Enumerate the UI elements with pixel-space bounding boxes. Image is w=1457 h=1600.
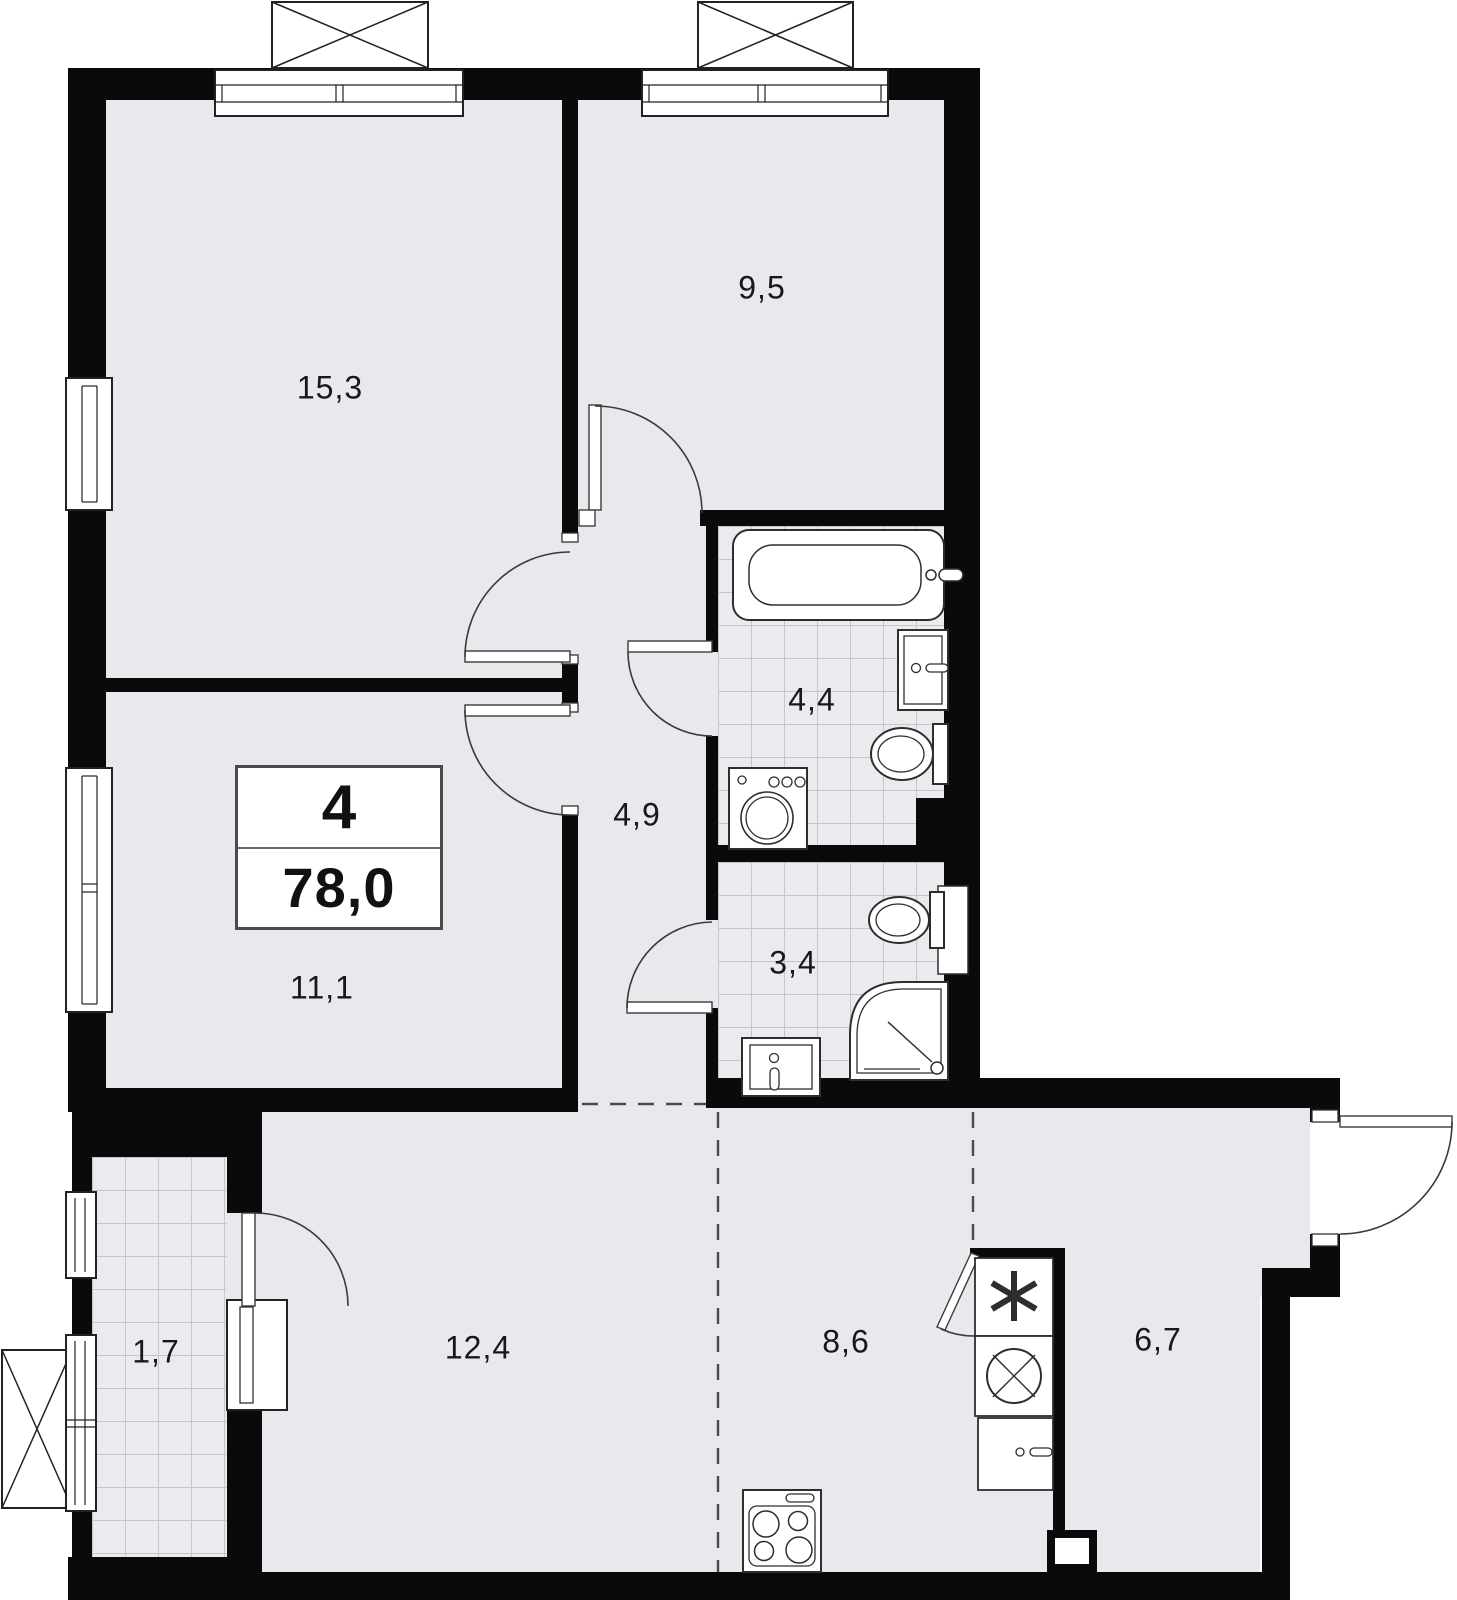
floor-plan: 15,3 9,5 4,4 4,9 3,4 11,1 1,7 12,4 8,6 6… xyxy=(0,0,1457,1600)
room-area-label-hallway: 4,9 xyxy=(613,797,660,834)
apartment-info-box: 4 78,0 xyxy=(235,765,443,930)
toilet-bathroom xyxy=(871,724,948,784)
rooms-count: 4 xyxy=(238,768,440,849)
door-balcony xyxy=(242,1213,348,1306)
room-area-label-shower-room: 3,4 xyxy=(769,945,816,982)
window-balcony-room xyxy=(227,1300,287,1410)
room-area-label-kitchen: 8,6 xyxy=(822,1324,869,1361)
jamb xyxy=(562,533,578,542)
door-living-room xyxy=(465,552,570,662)
stove xyxy=(743,1490,821,1572)
total-area: 78,0 xyxy=(238,849,440,928)
toilet-shower-room xyxy=(869,886,968,974)
window-living-top xyxy=(215,70,463,116)
jamb xyxy=(579,510,595,526)
kitchen-cabinet xyxy=(978,1418,1053,1490)
entrance-opening xyxy=(1310,1110,1340,1246)
door-shower-room xyxy=(627,922,712,1013)
shower-cabin xyxy=(850,982,948,1080)
room-area-label-dining: 6,7 xyxy=(1134,1322,1181,1359)
door-bedroom2 xyxy=(465,705,570,815)
door-kitchen-flap xyxy=(937,1253,979,1336)
window-balcony-left-lower xyxy=(66,1335,96,1511)
vent-box-top-right xyxy=(698,2,853,68)
washing-machine xyxy=(729,768,807,849)
room-area-label-bedroom2: 11,1 xyxy=(290,970,354,1007)
room-area-label-bathroom: 4,4 xyxy=(788,682,835,719)
vent-box-top-left xyxy=(272,2,428,68)
refrigerator xyxy=(975,1258,1053,1336)
door-entrance xyxy=(1340,1116,1452,1234)
window-bedroom-top xyxy=(642,70,888,116)
window-bedroom2-left xyxy=(66,768,112,1012)
window-living-left xyxy=(66,378,112,510)
washbasin-shower-room xyxy=(742,1038,820,1096)
jamb xyxy=(562,806,578,815)
room-area-label-living-area: 12,4 xyxy=(445,1330,511,1367)
door-bedroom xyxy=(589,405,702,513)
vent-box-bottom-left xyxy=(2,1350,72,1508)
door-bathroom xyxy=(628,641,712,736)
window-balcony-left-upper xyxy=(66,1192,96,1278)
washbasin-bathroom xyxy=(898,630,948,710)
plan-overlay xyxy=(0,0,1457,1600)
kitchen-sink xyxy=(975,1336,1053,1416)
bathtub xyxy=(733,530,963,620)
room-area-label-living-room: 15,3 xyxy=(297,370,363,407)
room-area-label-bedroom: 9,5 xyxy=(738,270,785,307)
room-area-label-balcony: 1,7 xyxy=(132,1334,179,1371)
